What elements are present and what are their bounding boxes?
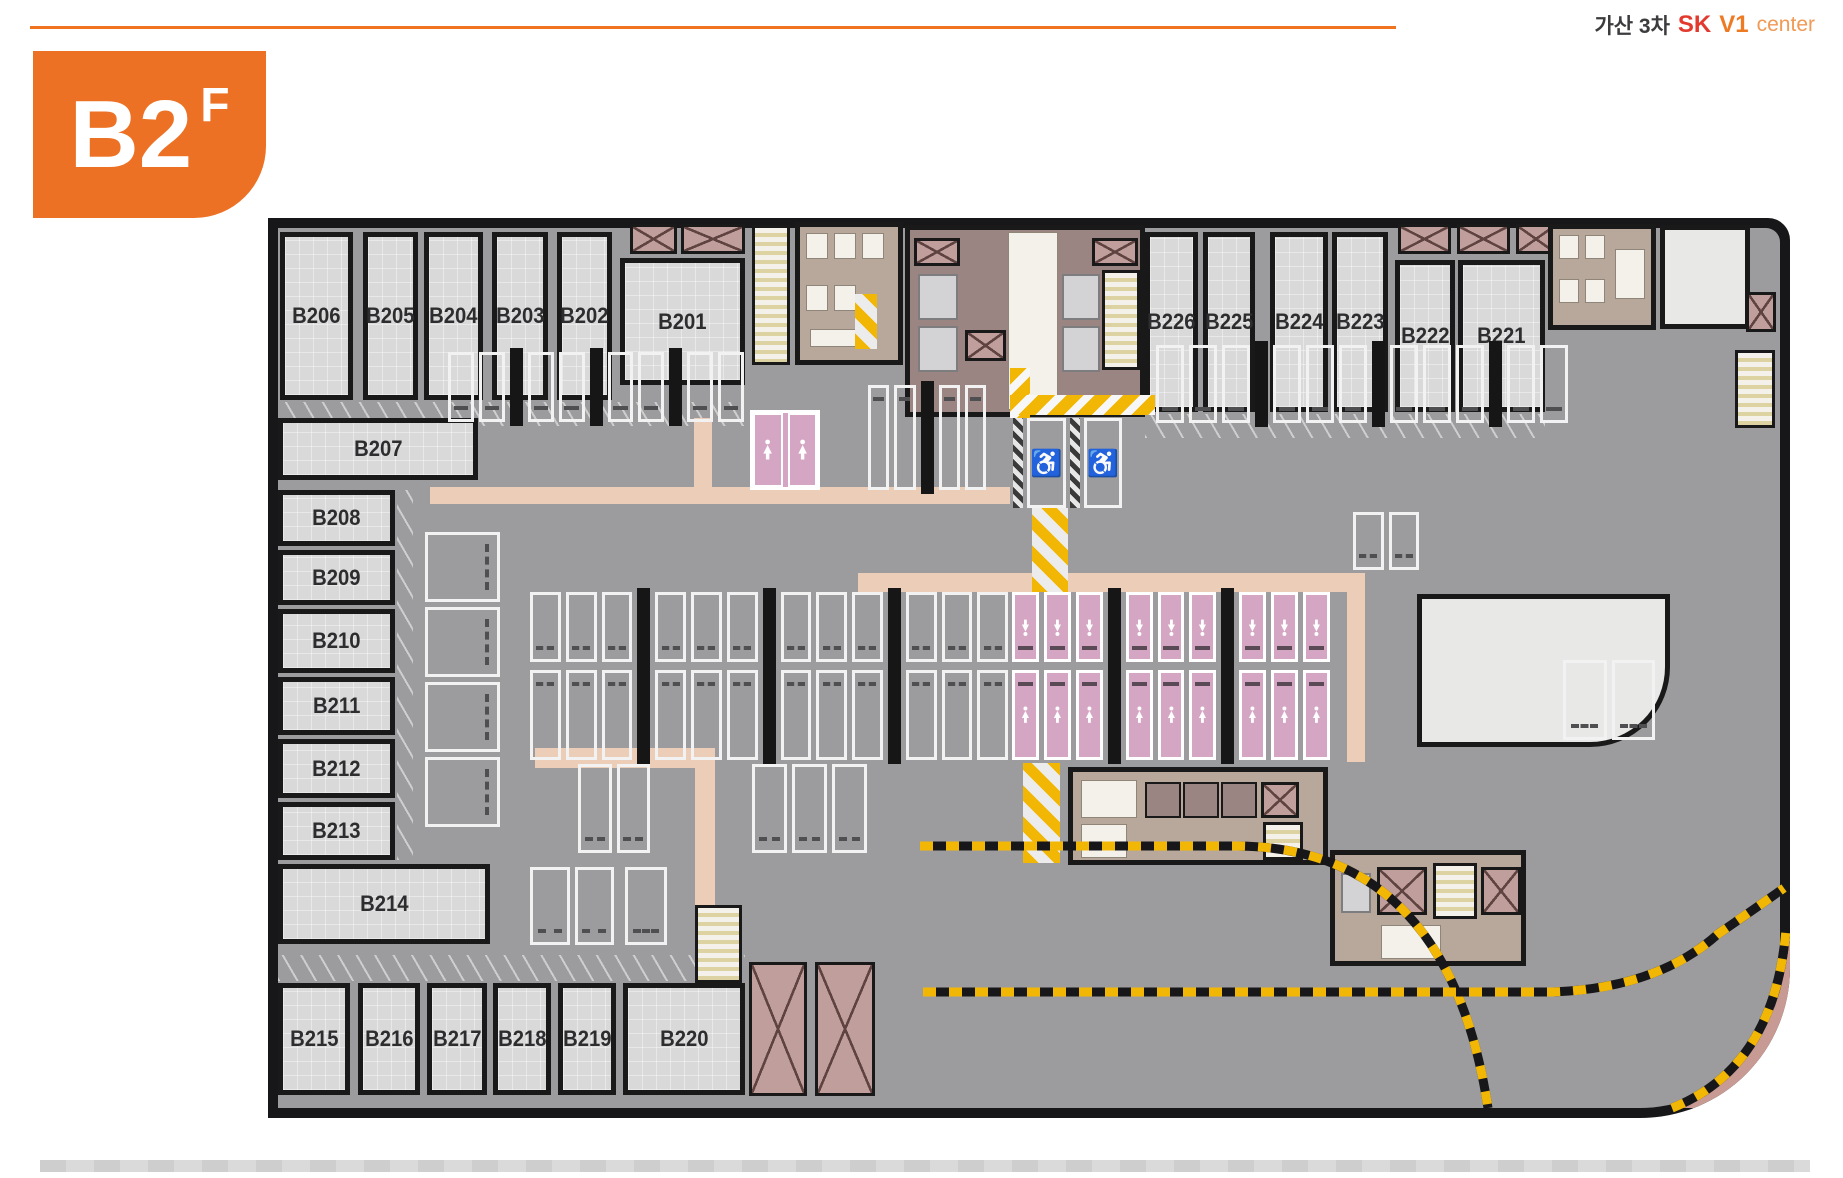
v1-logo: V1	[1719, 11, 1748, 39]
page-footer-strip	[40, 1160, 1810, 1172]
floor-suffix: F	[200, 78, 229, 133]
hazard-curve-stripes	[920, 846, 1488, 1108]
hazard-curve	[920, 846, 1488, 1108]
project-name: 가산 3차	[1594, 10, 1669, 40]
floorplan-page: 가산 3차 SKV1 center B2 F B206 B205 B204 B2…	[0, 0, 1843, 1178]
floor-badge: B2 F	[33, 51, 266, 218]
hazard-curve-stripes	[923, 888, 1784, 992]
building-title: 가산 3차 SKV1 center	[1594, 8, 1815, 42]
header-rule	[30, 26, 1396, 29]
ramp-hazard-overlay	[268, 218, 1790, 1118]
sk-logo: SK	[1678, 11, 1711, 39]
ramp-wedge	[1676, 934, 1790, 1108]
floor-number: B2	[69, 87, 192, 183]
floorplan: B206 B205 B204 B203 B202 B201 B226 B225 …	[268, 218, 1790, 1118]
center-label: center	[1757, 13, 1815, 37]
